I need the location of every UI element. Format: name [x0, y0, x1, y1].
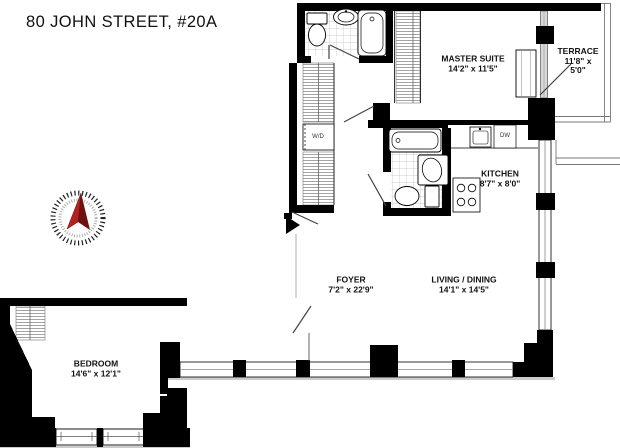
terrace-window-wall [541, 11, 548, 98]
compass-icon [53, 193, 103, 243]
living-east-window-wall [539, 140, 551, 330]
master-suite-dims: 14'2" x 11'5" [441, 64, 504, 74]
foyer-dims: 7'2" x 22'9" [328, 285, 373, 295]
room-label-bedroom: BEDROOM 14'6" x 12'1" [71, 360, 121, 379]
bedroom-dims: 14'6" x 12'1" [71, 369, 121, 379]
terrace-dims-2: 5'0" [557, 66, 598, 76]
dishwasher-label: DW [500, 133, 510, 139]
entry-arrow-icon [286, 216, 300, 234]
south-window-wall [160, 362, 555, 380]
walls [0, 3, 601, 447]
kitchen-dims: 8'7" x 8'0" [480, 179, 520, 189]
floor-plan-drawing [0, 0, 620, 448]
room-label-kitchen: KITCHEN 8'7" x 8'0" [480, 170, 520, 189]
floor-plan: 80 JOHN STREET, #20A MASTER SUITE 14'2" … [0, 0, 620, 448]
room-label-master-suite: MASTER SUITE 14'2" x 11'5" [441, 55, 504, 74]
washer-dryer-label: W/D [312, 134, 324, 140]
building-edge-lines [556, 140, 620, 165]
room-label-living-dining: LIVING / DINING 14'1" x 14'5" [431, 276, 496, 295]
living-dining-dims: 14'1" x 14'5" [431, 285, 496, 295]
plan-title: 80 JOHN STREET, #20A [26, 13, 217, 32]
room-label-foyer: FOYER 7'2" x 22'9" [328, 276, 373, 295]
terrace-door-leaf [516, 50, 536, 97]
room-label-terrace: TERRACE 11'8" x 5'0" [557, 47, 598, 76]
